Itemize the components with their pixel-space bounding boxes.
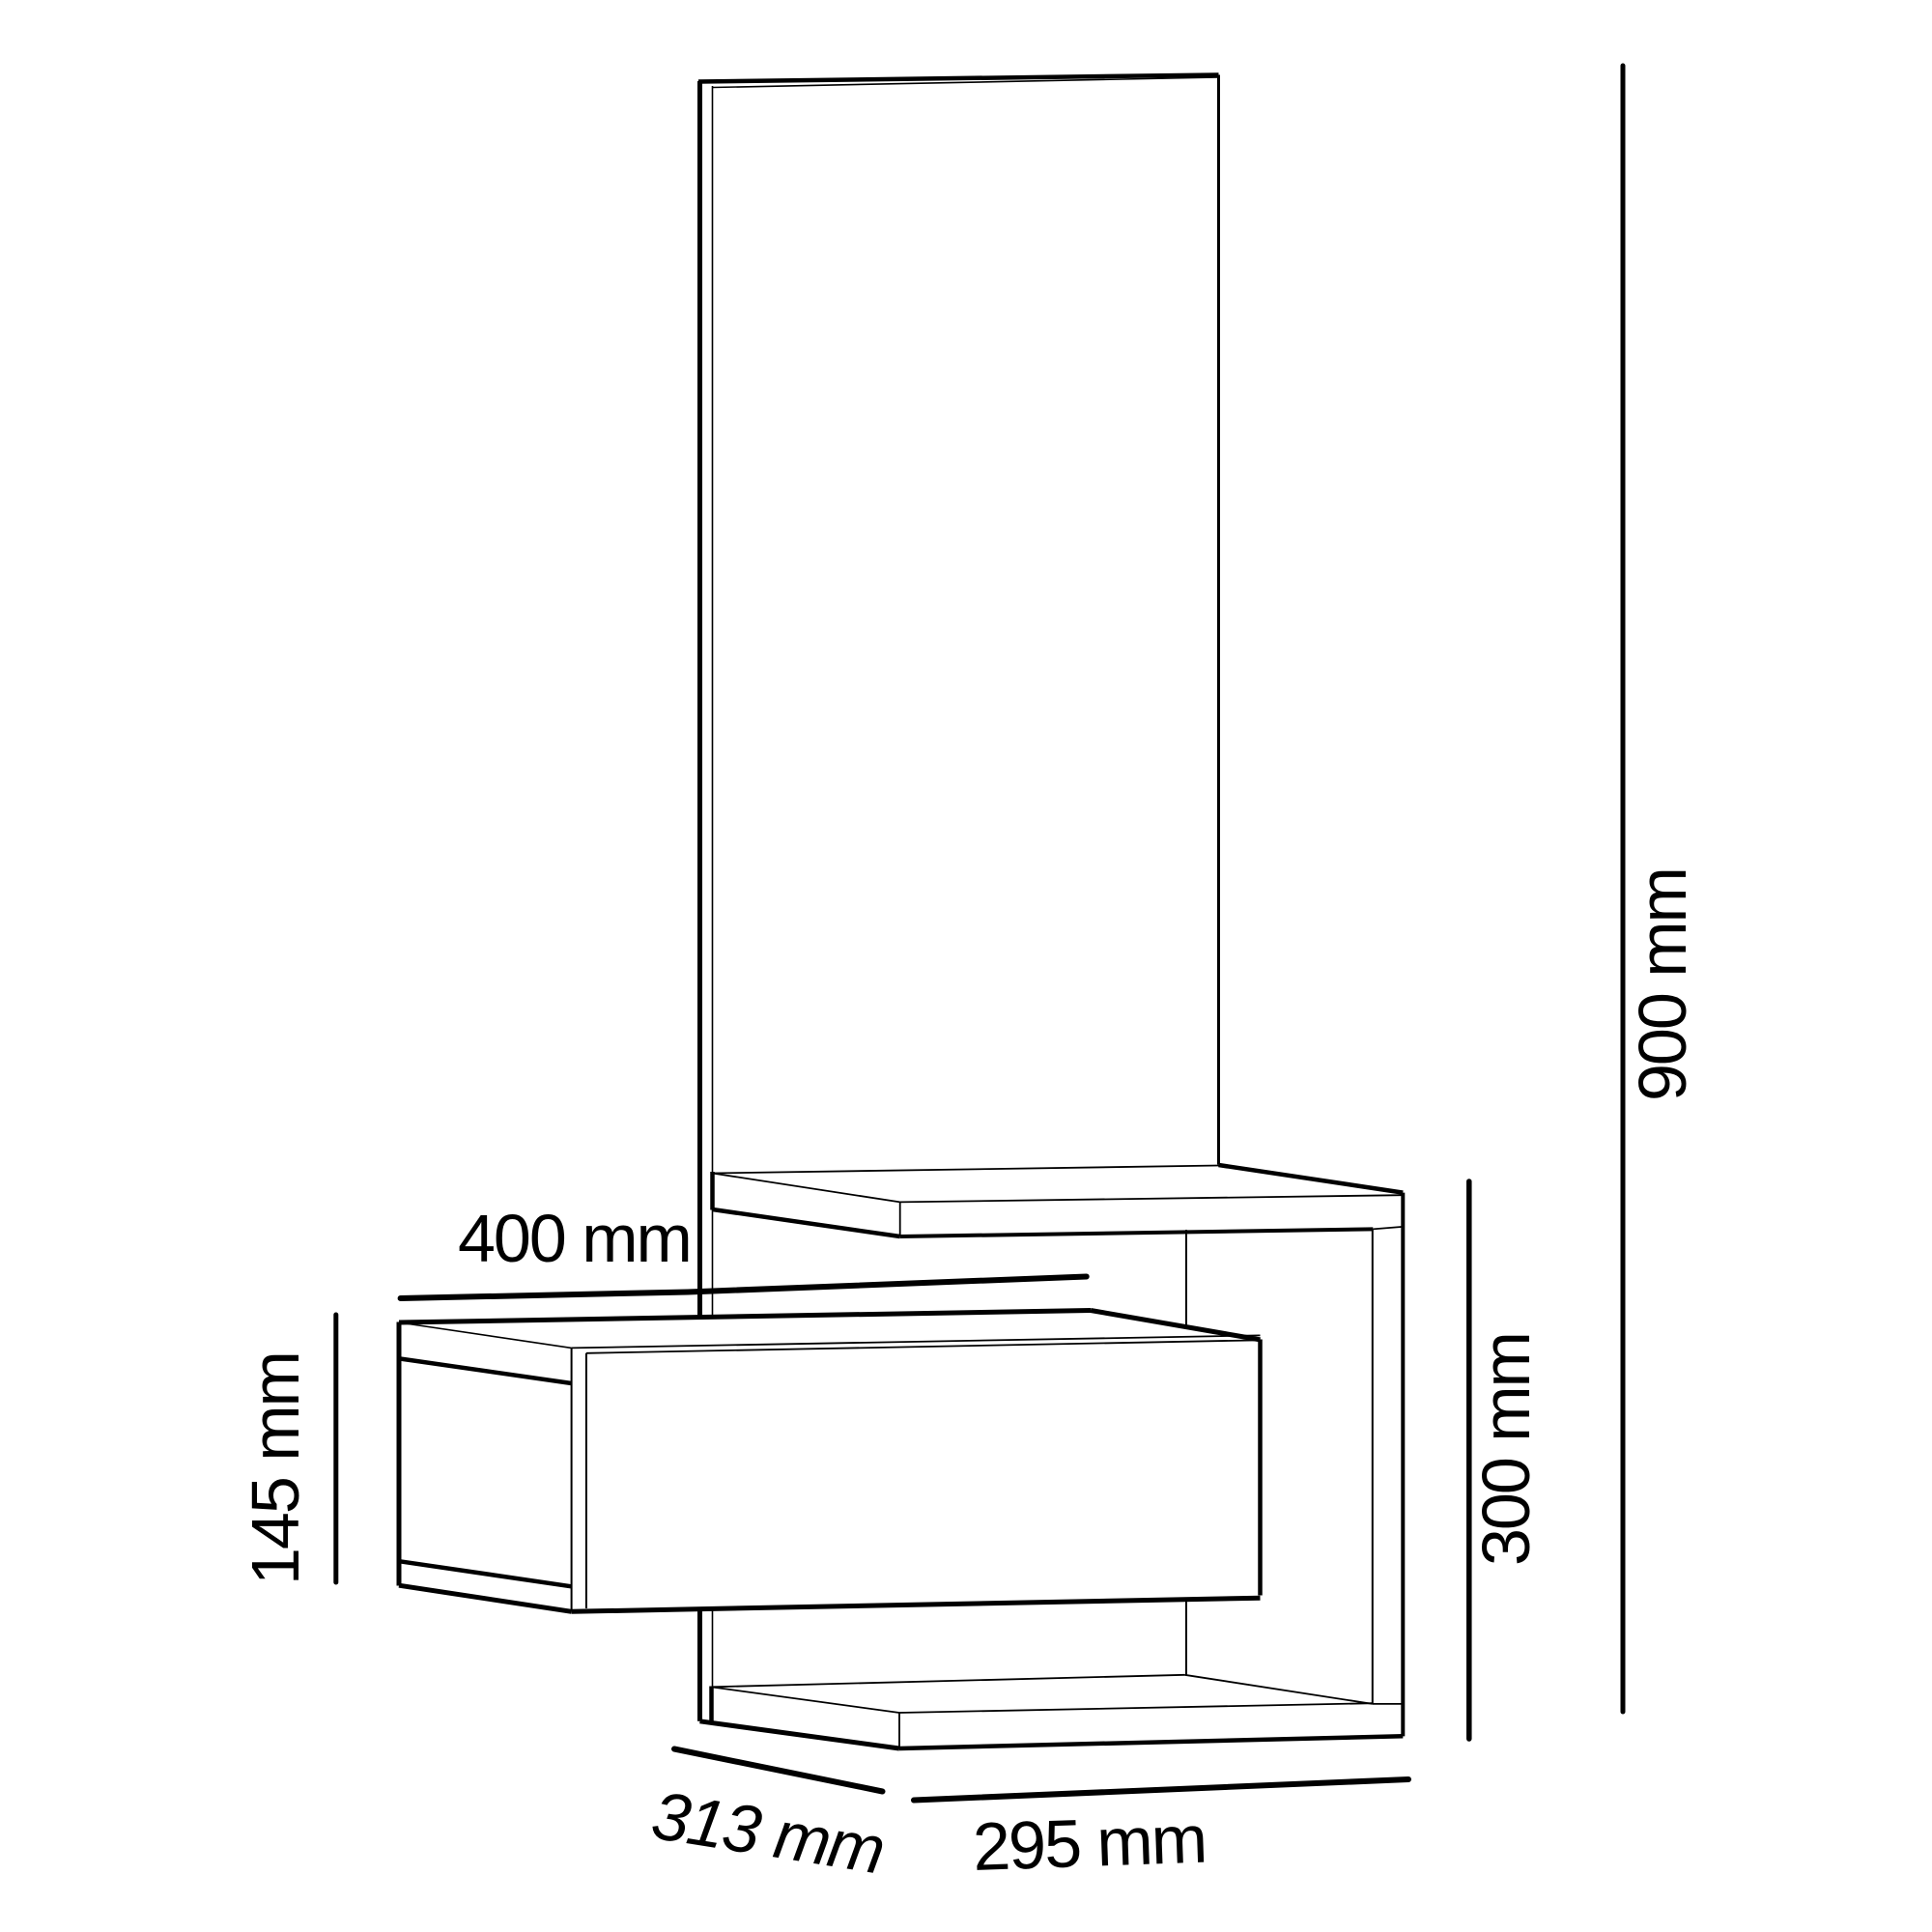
svg-text:295 mm: 295 mm xyxy=(972,1802,1207,1885)
svg-text:300 mm: 300 mm xyxy=(1468,1333,1544,1566)
svg-text:145 mm: 145 mm xyxy=(238,1352,313,1585)
svg-text:400 mm: 400 mm xyxy=(458,1201,691,1276)
svg-text:900 mm: 900 mm xyxy=(1625,868,1700,1101)
